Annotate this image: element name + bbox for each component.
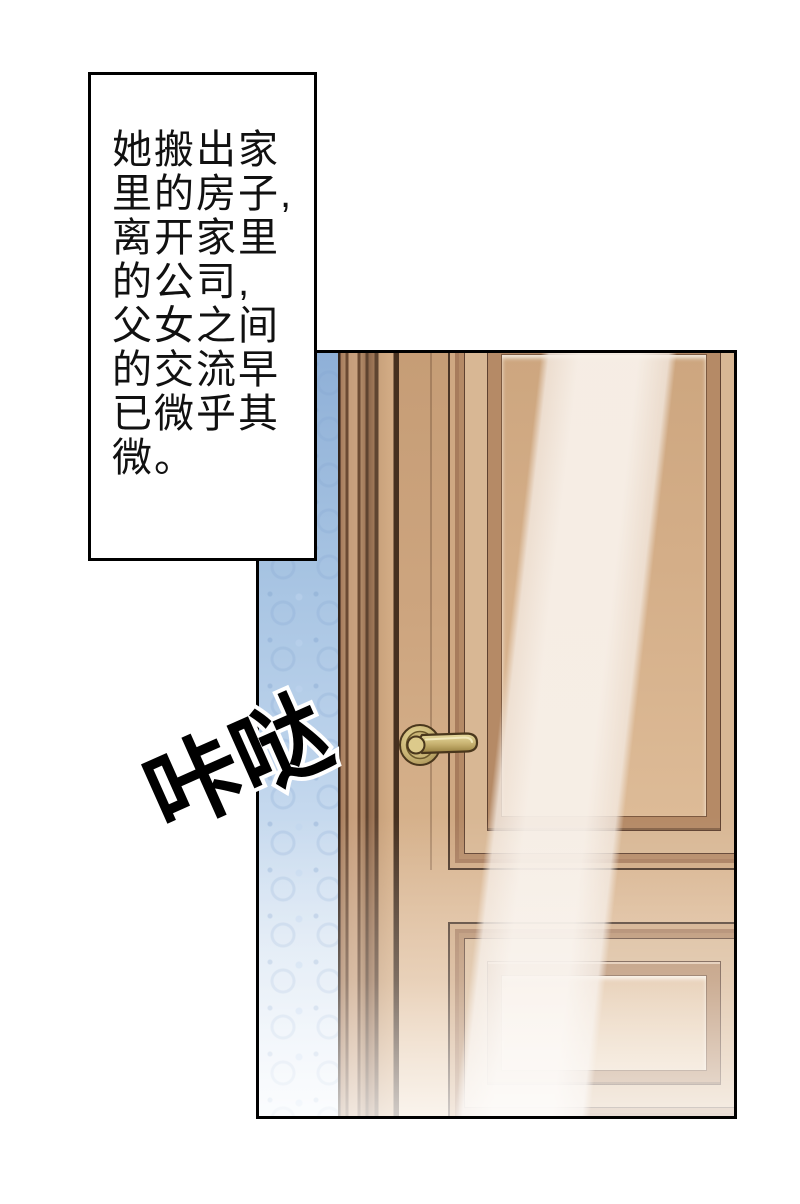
- door-stile-line: [430, 353, 432, 870]
- door-frame: [338, 353, 399, 1116]
- scene-panel: [256, 350, 737, 1119]
- door-handle: [398, 721, 486, 767]
- narration-text: 她搬出家 里的房子, 离开家里 的公司, 父女之间 的交流早 已微乎其 微。: [112, 128, 293, 480]
- narration-box: 她搬出家 里的房子, 离开家里 的公司, 父女之间 的交流早 已微乎其 微。: [88, 72, 317, 561]
- comic-page: { "narration": { "text": "她搬出家\n里的房子,\n离…: [0, 0, 800, 1204]
